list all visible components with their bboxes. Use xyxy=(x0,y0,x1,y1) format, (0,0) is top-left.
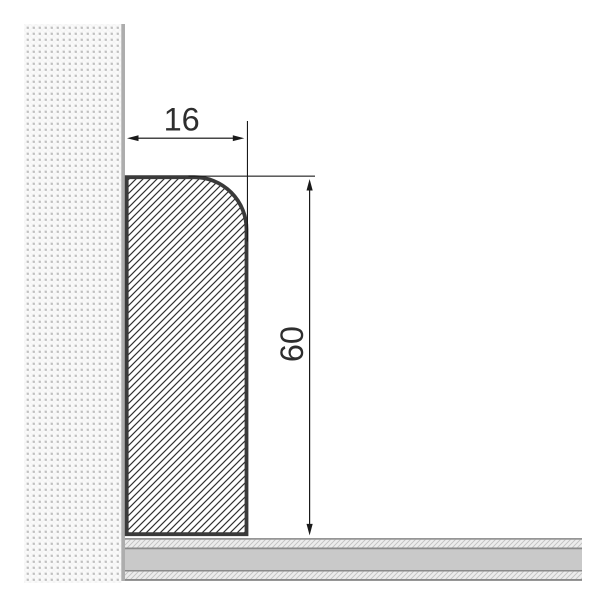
svg-text:60: 60 xyxy=(274,326,310,362)
svg-text:16: 16 xyxy=(164,102,200,138)
